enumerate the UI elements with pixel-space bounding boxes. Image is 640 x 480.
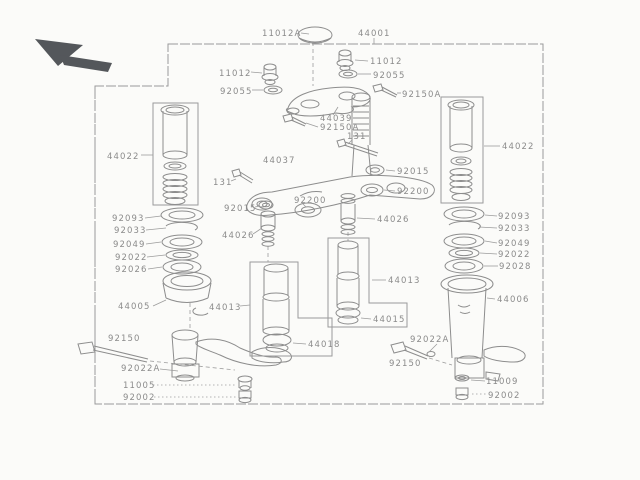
leader-line [146, 242, 161, 244]
part-label-92150A-right: 92150A [402, 90, 441, 100]
part-label-92015-right: 92015 [397, 167, 430, 177]
part-label-44026-left: 44026 [222, 231, 255, 241]
leader-line [148, 267, 162, 269]
leader-line [145, 216, 161, 218]
arrow-shaft [60, 55, 112, 72]
part-label-11012-left: 11012 [219, 69, 252, 79]
part-label-92055-left: 92055 [220, 87, 253, 97]
part-label-92033-right: 92033 [498, 224, 531, 234]
leader-line [487, 298, 495, 299]
part-label-92026-left: 92026 [115, 265, 148, 275]
part-label-44015: 44015 [373, 315, 406, 325]
leader-line [384, 190, 395, 191]
part-labels: 11012A 44001 11012 92055 11012 92055 921… [107, 29, 535, 403]
kit-box-outline [153, 103, 198, 205]
part-label-92150-right: 92150 [389, 359, 422, 369]
part-top-cap-11012A [298, 27, 332, 43]
leader-line [357, 218, 375, 219]
part-stack-right [444, 207, 484, 273]
part-bolt-131-left [232, 169, 253, 183]
frame-outline [95, 44, 543, 404]
part-label-11012A: 11012A [262, 29, 301, 39]
part-label-92049-left: 92049 [113, 240, 146, 250]
part-label-92022A-left: 92022A [121, 364, 160, 374]
leader-line [306, 123, 318, 127]
part-bolt-92002-left [239, 391, 251, 403]
leader-line [485, 215, 497, 216]
front-fork-exploded-diagram: 11012A 44001 11012 92055 11012 92055 921… [0, 0, 640, 480]
part-label-92028-right: 92028 [499, 262, 532, 272]
leader-line [147, 255, 165, 257]
part-bolt-11012-left [262, 64, 278, 85]
part-label-44013-left: 44013 [209, 303, 242, 313]
part-guide-44026-left [261, 211, 275, 246]
part-bolt-92150A-right [373, 84, 397, 97]
part-label-92002-left: 92002 [123, 393, 156, 403]
kit-box-44022-right [441, 97, 483, 203]
part-label-11005-left: 11005 [123, 381, 156, 391]
part-bolt-92002-right [456, 388, 468, 400]
part-steering-stem-44037 [247, 93, 435, 215]
part-label-92049-right: 92049 [498, 239, 531, 249]
part-label-11009-right: 11009 [486, 377, 519, 387]
part-label-92150-left: 92150 [108, 334, 141, 344]
leader-line [355, 60, 368, 61]
part-label-44005-left: 44005 [118, 302, 151, 312]
part-bolt-11005-left [238, 376, 252, 390]
part-label-92200-right: 92200 [397, 187, 430, 197]
leader-line [361, 318, 371, 319]
leader-line [293, 343, 306, 344]
cap-outline [298, 27, 332, 43]
part-stack-left [161, 208, 203, 274]
part-label-92022A-right: 92022A [410, 335, 449, 345]
part-bolt-92150-left [78, 342, 148, 362]
part-washer-92200-right [361, 184, 383, 196]
part-label-44022-left: 44022 [107, 152, 140, 162]
leader-line [429, 358, 452, 365]
part-label-92022-right: 92022 [498, 250, 531, 260]
parts-diagram-page: 11012A 44001 11012 92055 11012 92055 921… [0, 0, 640, 480]
part-44015-seal-inner [338, 316, 358, 324]
part-bolt-11012-right [337, 50, 353, 71]
part-ring-92055-left [264, 86, 282, 94]
part-label-44006-right: 44006 [497, 295, 530, 305]
leader-line [150, 361, 235, 370]
part-nut-92015-right [366, 165, 384, 175]
part-label-92022-left: 92022 [115, 253, 148, 263]
part-ring-92055-right [339, 70, 357, 78]
leader-line [386, 170, 395, 171]
part-92022A-washer-right [427, 352, 435, 357]
part-label-92002-right: 92002 [488, 391, 521, 401]
part-label-92033-left: 92033 [114, 226, 147, 236]
part-label-92093-right: 92093 [498, 212, 531, 222]
part-label-44013-right: 44013 [388, 276, 421, 286]
part-outer-tube-44006 [441, 275, 525, 381]
part-label-44018: 44018 [308, 340, 341, 350]
diagram-frame [95, 44, 543, 404]
part-label-44001: 44001 [358, 29, 391, 39]
leader-line [479, 227, 497, 228]
leader-line [485, 241, 497, 243]
leader-line [160, 369, 178, 371]
kit-box-44022-left [153, 103, 198, 205]
part-label-92093-left: 92093 [112, 214, 145, 224]
part-label-11012-right: 11012 [370, 57, 403, 67]
leader-line [471, 380, 485, 381]
leader-line [480, 253, 497, 254]
part-label-131-left: 131 [213, 178, 233, 188]
leader-line [153, 300, 166, 306]
part-label-92015-left: 92015 [224, 204, 257, 214]
leader-line [301, 33, 309, 34]
part-dust-cup-44005-left [163, 272, 211, 315]
part-label-92200-center: 92200 [294, 196, 327, 206]
direction-arrow [35, 39, 112, 72]
part-label-44037: 44037 [263, 156, 296, 166]
leader-line [429, 344, 437, 352]
part-label-44022-right: 44022 [502, 142, 535, 152]
part-label-44026-right: 44026 [377, 215, 410, 225]
part-label-92055-right: 92055 [373, 71, 406, 81]
leader-line [146, 228, 166, 230]
part-label-131-upper: 131 [347, 132, 367, 142]
leader-line [251, 72, 262, 73]
